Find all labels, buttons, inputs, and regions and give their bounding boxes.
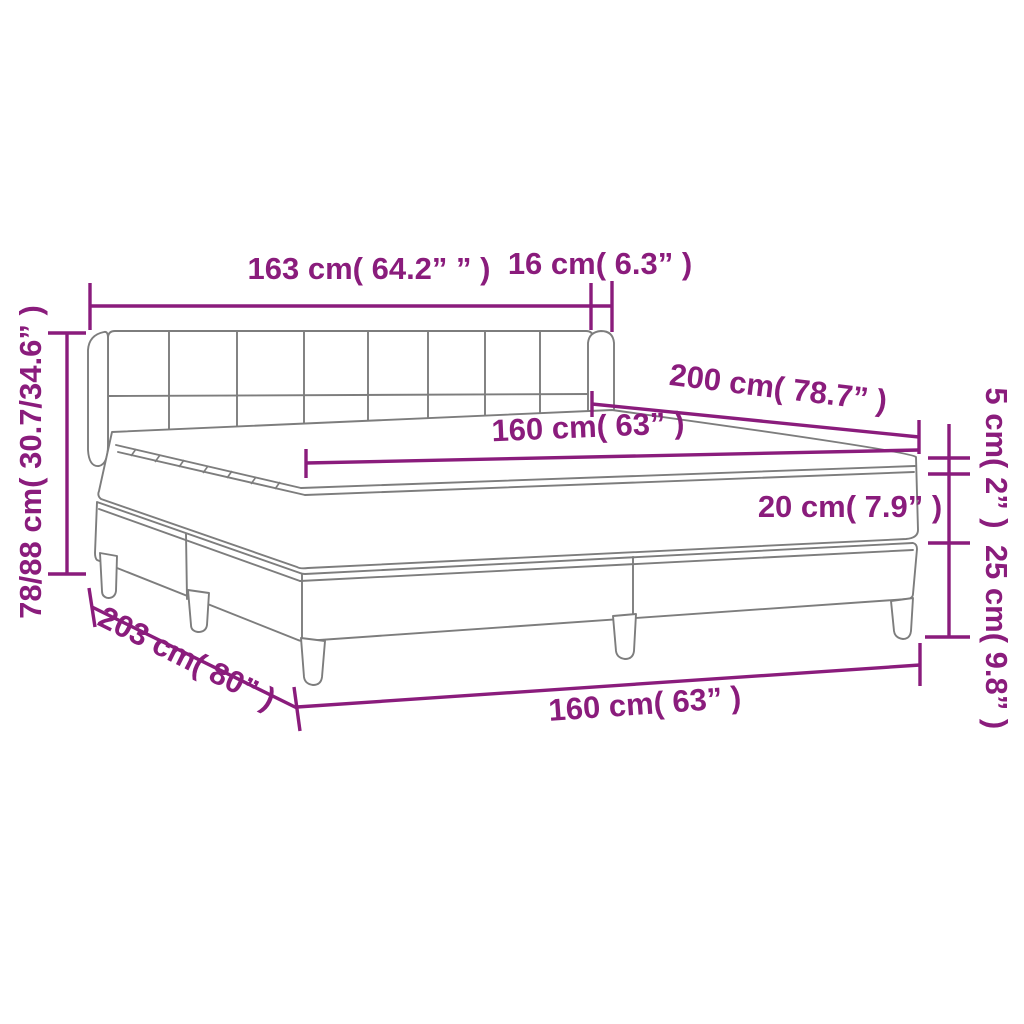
label-mattress-height: 20 cm( 7.9” ) — [758, 489, 942, 524]
label-ear-depth: 16 cm( 6.3” ) — [508, 246, 692, 281]
dim-tick — [294, 687, 300, 731]
dimension-diagram: 163 cm( 64.2” ” ) 16 cm( 6.3” ) 200 cm( … — [0, 0, 1024, 1024]
leg-foot-right — [891, 598, 913, 639]
leg-foot-mid — [613, 614, 636, 659]
label-topper-height: 5 cm( 2” ) — [979, 387, 1014, 528]
label-mattress-length: 200 cm( 78.7” ) — [668, 357, 889, 418]
label-total-height: 78/88 cm( 30.7/34.6” ) — [13, 305, 48, 619]
leg-back-left — [100, 553, 117, 598]
leg-front-corner — [301, 638, 325, 685]
label-headboard-width: 163 cm( 64.2” ” ) — [248, 251, 491, 286]
base-seam-left — [186, 534, 187, 599]
leg-left-mid — [188, 590, 209, 632]
headboard-left-ear — [88, 332, 108, 466]
bed-dimension-svg: 163 cm( 64.2” ” ) 16 cm( 6.3” ) 200 cm( … — [0, 0, 1024, 1024]
label-base-height: 25 cm( 9.8” ) — [979, 545, 1014, 729]
